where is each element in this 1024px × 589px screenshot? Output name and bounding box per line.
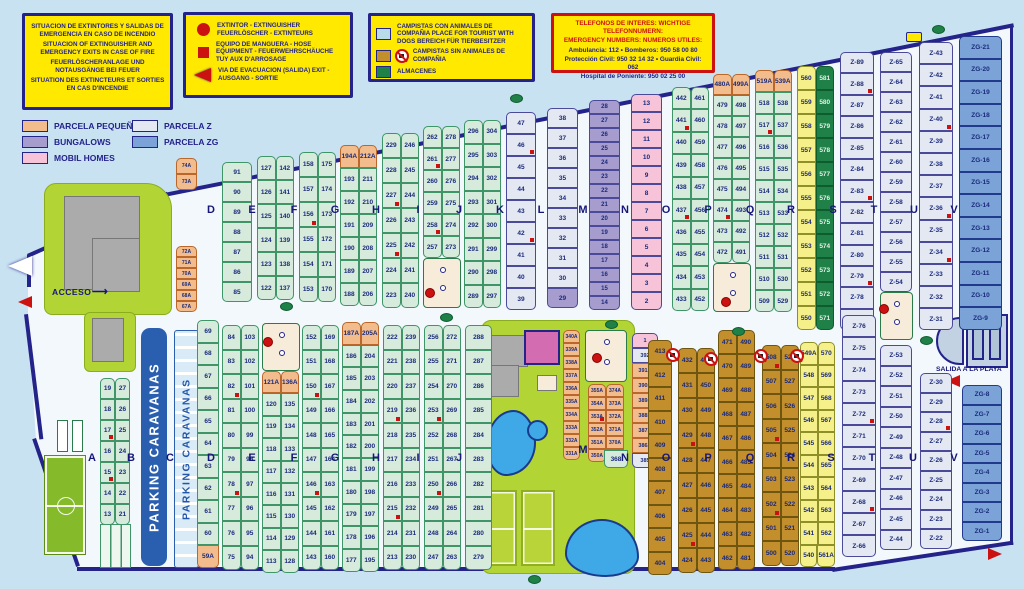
parcel-197: 197 bbox=[361, 504, 380, 527]
parcel-37: 37 bbox=[547, 128, 578, 148]
parcel-473: 473 bbox=[713, 221, 732, 242]
parcel-column-gh-lower: 187A205A18620418520318420218320118220018… bbox=[342, 322, 379, 572]
parcel-Z-23: Z-23 bbox=[920, 510, 952, 530]
phones-title-2: EMERGENCY NUMBERS: NUMEROS UTILES: bbox=[559, 37, 707, 45]
parcel-214: 214 bbox=[383, 521, 402, 546]
area-label-F: F bbox=[291, 204, 298, 216]
area-label-T: T bbox=[869, 452, 876, 464]
parcel-185: 185 bbox=[342, 367, 361, 390]
area-label-A: A bbox=[88, 452, 96, 464]
parcel-353A: 353A bbox=[588, 410, 606, 423]
parcel-31: 31 bbox=[547, 248, 578, 268]
marker-icon bbox=[437, 491, 441, 495]
parcel-ZG-1: ZG-1 bbox=[962, 522, 1002, 542]
parcel-231: 231 bbox=[402, 521, 421, 546]
parcel-206: 206 bbox=[359, 283, 378, 306]
parcel-67: 67 bbox=[197, 365, 219, 388]
bottom-exit-arrow bbox=[988, 548, 1002, 560]
parcel-column-k-upper: 474645444342414039 bbox=[506, 112, 536, 310]
parcel-85: 85 bbox=[222, 282, 252, 302]
info-point-icon bbox=[906, 32, 922, 42]
parcel-158: 158 bbox=[299, 152, 318, 177]
parcel-legend-swatch bbox=[132, 120, 158, 132]
parcel-552: 552 bbox=[797, 258, 816, 282]
legend-hose-text: EQUIPO DE MANGUERA - HOSE EQUIPMENT - FE… bbox=[216, 41, 334, 64]
parcel-215: 215 bbox=[383, 497, 402, 522]
parcel-ZG-8: ZG-8 bbox=[962, 385, 1002, 405]
extinguisher-icon bbox=[721, 297, 731, 307]
parcel-83: 83 bbox=[222, 350, 241, 375]
area-label-V: V bbox=[950, 452, 957, 464]
pink-building bbox=[524, 330, 560, 365]
parcel-287: 287 bbox=[465, 350, 492, 375]
parcel-517: 517 bbox=[755, 114, 774, 136]
parcel-148: 148 bbox=[302, 423, 321, 448]
parcel-130: 130 bbox=[281, 505, 300, 527]
parcel-126: 126 bbox=[257, 180, 276, 204]
parcel-10: 10 bbox=[631, 148, 662, 166]
parcel-column-tu-upper: Z-65Z-64Z-63Z-62Z-61Z-60Z-59Z-58Z-57Z-56… bbox=[880, 52, 912, 292]
parcel-187A: 187A bbox=[342, 322, 361, 345]
parcel-Z-86: Z-86 bbox=[840, 116, 874, 137]
parcel-404: 404 bbox=[648, 552, 672, 576]
parcel-513: 513 bbox=[755, 202, 774, 224]
parcel-426: 426 bbox=[678, 498, 697, 523]
parcel-legend-swatch bbox=[22, 120, 48, 132]
parcel-Z-42: Z-42 bbox=[919, 64, 953, 86]
parcel-497: 497 bbox=[732, 116, 751, 137]
parcel-28: 28 bbox=[589, 100, 620, 114]
parcel-Z-27: Z-27 bbox=[920, 432, 952, 452]
legend-exit-text: VIA DE EVACUACION (SALIDA) EXIT - AUSGAN… bbox=[218, 67, 336, 83]
parcel-Z-25: Z-25 bbox=[920, 471, 952, 491]
parcel-Z-41: Z-41 bbox=[919, 86, 953, 108]
parcel-276: 276 bbox=[442, 170, 461, 192]
parcel-544: 544 bbox=[800, 455, 818, 478]
parcel-15: 15 bbox=[100, 462, 115, 483]
parcel-14: 14 bbox=[589, 296, 620, 310]
marker-icon bbox=[530, 150, 534, 154]
parcel-432: 432 bbox=[678, 348, 697, 373]
parcel-296: 296 bbox=[464, 120, 483, 144]
parcel-25: 25 bbox=[115, 420, 130, 441]
area-label-U: U bbox=[909, 452, 917, 464]
parcel-column-fg-lower: 1521691511681501671491661481651471641461… bbox=[302, 325, 339, 570]
parcel-443: 443 bbox=[697, 548, 716, 573]
parcel-543: 543 bbox=[800, 477, 818, 500]
parcel-238: 238 bbox=[402, 350, 421, 375]
parcel-column-st-upper: Z-89Z-88Z-87Z-86Z-85Z-84Z-83Z-82Z-81Z-80… bbox=[840, 52, 874, 330]
parcel-ZG-3: ZG-3 bbox=[962, 483, 1002, 503]
parcel-column-f-upper: 158175157174156173155172154171153170 bbox=[299, 152, 336, 302]
parcel-ZG-17: ZG-17 bbox=[959, 126, 1002, 149]
parcel-118: 118 bbox=[262, 438, 281, 460]
parcel-124: 124 bbox=[257, 228, 276, 252]
parcel-556: 556 bbox=[797, 162, 816, 186]
parcel-149: 149 bbox=[302, 399, 321, 424]
parcel-Z-59: Z-59 bbox=[880, 172, 912, 192]
marker-icon bbox=[109, 477, 113, 481]
parcel-Z-61: Z-61 bbox=[880, 132, 912, 152]
parcel-27: 27 bbox=[115, 378, 130, 399]
parcel-563: 563 bbox=[818, 500, 836, 523]
parcel-460: 460 bbox=[691, 109, 710, 131]
parcel-44: 44 bbox=[506, 178, 536, 200]
parcel-Z-48: Z-48 bbox=[880, 448, 912, 469]
tree-icon bbox=[732, 327, 745, 336]
parcel-129: 129 bbox=[281, 528, 300, 550]
parcel-79: 79 bbox=[222, 448, 241, 473]
parcel-13: 13 bbox=[631, 94, 662, 112]
parcel-220: 220 bbox=[383, 374, 402, 399]
parcel-40: 40 bbox=[506, 266, 536, 288]
parcel-147: 147 bbox=[302, 448, 321, 473]
parcel-175: 175 bbox=[318, 152, 337, 177]
parcel-196: 196 bbox=[361, 526, 380, 549]
parcel-68: 68 bbox=[197, 343, 219, 366]
parcel-Z-65: Z-65 bbox=[880, 52, 912, 72]
parcel-99: 99 bbox=[241, 423, 260, 448]
parcel-560: 560 bbox=[797, 66, 816, 90]
parcel-289: 289 bbox=[464, 285, 483, 309]
parcel-143: 143 bbox=[302, 546, 321, 571]
parcel-119: 119 bbox=[262, 416, 281, 438]
parcel-Z-66: Z-66 bbox=[842, 535, 876, 557]
legend-almacenes-text: ALMACENES bbox=[397, 68, 436, 76]
parcel-legend-swatch bbox=[22, 152, 48, 164]
parcel-466: 466 bbox=[718, 450, 737, 474]
parcel-457: 457 bbox=[691, 177, 710, 199]
legend-extintor-text: EXTINTOR - EXTINGUISHER FEUERLÖSCHER - E… bbox=[217, 22, 335, 38]
dogs-zone-swatch bbox=[376, 28, 391, 40]
parcel-15: 15 bbox=[589, 282, 620, 296]
parcel-213: 213 bbox=[383, 546, 402, 571]
parcel-94: 94 bbox=[241, 546, 260, 571]
parcel-77: 77 bbox=[222, 497, 241, 522]
parcel-135: 135 bbox=[281, 393, 300, 415]
parcel-78: 78 bbox=[222, 472, 241, 497]
parcel-536: 536 bbox=[774, 136, 793, 158]
parcel-224: 224 bbox=[382, 258, 401, 283]
parcel-190: 190 bbox=[340, 237, 359, 260]
sanitary-building-1 bbox=[488, 335, 528, 367]
parcel-17: 17 bbox=[100, 420, 115, 441]
area-label-O: O bbox=[662, 452, 671, 464]
parcel-182: 182 bbox=[342, 435, 361, 458]
tree-icon bbox=[932, 25, 945, 34]
parcel-577: 577 bbox=[816, 162, 835, 186]
parcel-264: 264 bbox=[443, 521, 462, 546]
area-label-J: J bbox=[456, 204, 462, 216]
parcel-372A: 372A bbox=[606, 410, 624, 423]
area-label-M: M bbox=[578, 204, 587, 216]
area-label-H: H bbox=[372, 204, 380, 216]
parcel-454: 454 bbox=[691, 244, 710, 266]
parcel-438: 438 bbox=[672, 177, 691, 199]
parcel-286: 286 bbox=[465, 374, 492, 399]
area-label-O: O bbox=[662, 204, 671, 216]
legend-zones-box: CAMPISTAS CON ANIMALES DE COMPAÑIA PLACE… bbox=[368, 13, 535, 82]
parcel-464: 464 bbox=[718, 498, 737, 522]
parcel-167: 167 bbox=[321, 374, 340, 399]
parcel-Z-37: Z-37 bbox=[919, 175, 953, 197]
parcel-221: 221 bbox=[383, 350, 402, 375]
parcel-column-de-lower: 8410383102821018110080997998789777967695… bbox=[222, 325, 259, 570]
parcel-477: 477 bbox=[713, 137, 732, 158]
parcel-ZG-18: ZG-18 bbox=[959, 104, 1002, 127]
parcel-266: 266 bbox=[443, 472, 462, 497]
parcel-column-e-upper: 127142126141125140124139123138122137 bbox=[257, 156, 294, 300]
parcel-292: 292 bbox=[464, 214, 483, 238]
parcel-ZG-10: ZG-10 bbox=[959, 285, 1002, 308]
parcel-131: 131 bbox=[281, 483, 300, 505]
parcel-65: 65 bbox=[197, 410, 219, 433]
parcel-34: 34 bbox=[547, 188, 578, 208]
parcel-Z-26: Z-26 bbox=[920, 451, 952, 471]
parcel-405: 405 bbox=[648, 528, 672, 552]
no-dogs-icon bbox=[790, 349, 804, 363]
legend-fire-fr: SITUATION DES EXTINCTEURS ET SORTIES EN … bbox=[30, 77, 165, 92]
parcel-468: 468 bbox=[718, 402, 737, 426]
marker-icon bbox=[395, 252, 399, 256]
parcel-241: 241 bbox=[401, 258, 420, 283]
parcel-161: 161 bbox=[321, 521, 340, 546]
area-label-M: M bbox=[578, 444, 587, 456]
parcel-33: 33 bbox=[547, 208, 578, 228]
parcel-column-r-upper: 5605815595805585795575785565775555765545… bbox=[797, 66, 834, 330]
parcel-502: 502 bbox=[762, 492, 781, 517]
parcel-527: 527 bbox=[781, 370, 800, 395]
parcel-6: 6 bbox=[631, 220, 662, 238]
legend-symbols-box: EXTINTOR - EXTINGUISHER FEUERLÖSCHER - E… bbox=[183, 12, 353, 98]
tree-icon bbox=[280, 302, 293, 311]
parcel-legend-label: MOBIL HOMES bbox=[54, 153, 115, 163]
parcel-column-ij-lower: 2562722552712542702532692522682512672502… bbox=[424, 325, 461, 570]
parcel-514: 514 bbox=[755, 180, 774, 202]
area-label-E: E bbox=[248, 204, 255, 216]
parcel-189: 189 bbox=[340, 260, 359, 283]
parcel-column-ef-lower: 121A136A12013511913411813311713211613111… bbox=[262, 371, 299, 573]
parcel-562: 562 bbox=[818, 522, 836, 545]
parcel-125: 125 bbox=[257, 204, 276, 228]
parcel-100: 100 bbox=[241, 399, 260, 424]
area-label-D: D bbox=[207, 452, 215, 464]
parcel-35: 35 bbox=[547, 168, 578, 188]
parcel-509: 509 bbox=[755, 290, 774, 312]
parcel-541: 541 bbox=[800, 522, 818, 545]
parcel-103: 103 bbox=[241, 325, 260, 350]
acceso-direction-arrow: ⟶ bbox=[92, 285, 108, 298]
parcel-ZG-21: ZG-21 bbox=[959, 36, 1002, 59]
parcel-370A: 370A bbox=[606, 436, 624, 449]
legend-fire-en: SITUACION OF EXTINGUISHER AND EMERGENCY … bbox=[30, 41, 165, 56]
parcel-Z-49: Z-49 bbox=[880, 427, 912, 448]
acceso-label: ACCESO bbox=[52, 287, 91, 297]
parcel-11: 11 bbox=[631, 130, 662, 148]
parcel-557: 557 bbox=[797, 138, 816, 162]
area-label-G: G bbox=[331, 204, 340, 216]
parcel-97: 97 bbox=[241, 472, 260, 497]
marker-icon bbox=[870, 419, 874, 423]
parcel-503: 503 bbox=[762, 468, 781, 493]
parcel-495: 495 bbox=[732, 158, 751, 179]
parcel-17: 17 bbox=[589, 254, 620, 268]
marker-icon bbox=[530, 238, 534, 242]
parcel-561A: 561A bbox=[817, 545, 835, 568]
parcel-530: 530 bbox=[774, 268, 793, 290]
parcel-335A: 335A bbox=[563, 395, 580, 408]
parcel-81: 81 bbox=[222, 399, 241, 424]
parcel-484: 484 bbox=[737, 474, 756, 498]
parcel-legend-row: PARCELA PEQUEÑA bbox=[22, 118, 139, 134]
parcel-ZG-7: ZG-7 bbox=[962, 405, 1002, 425]
parcel-516: 516 bbox=[755, 136, 774, 158]
parcel-legend-label: PARCELA Z bbox=[164, 121, 212, 131]
parcel-462: 462 bbox=[718, 546, 737, 570]
parcel-494: 494 bbox=[732, 179, 751, 200]
parcel-ZG-6: ZG-6 bbox=[962, 424, 1002, 444]
parcel-260: 260 bbox=[423, 170, 442, 192]
parcel-446: 446 bbox=[697, 473, 716, 498]
parcel-481: 481 bbox=[737, 546, 756, 570]
parcel-284: 284 bbox=[465, 423, 492, 448]
parcel-Z-32: Z-32 bbox=[919, 286, 953, 308]
area-label-J: J bbox=[456, 452, 462, 464]
parcel-425: 425 bbox=[678, 523, 697, 548]
parcel-62: 62 bbox=[197, 478, 219, 501]
parcel-120: 120 bbox=[262, 393, 281, 415]
legend-fire-de: FEUERLÖSCHERANLAGE UND NOTAUSGÄNGE BEI F… bbox=[30, 59, 165, 74]
sanitary-block-i bbox=[423, 258, 461, 308]
tree-icon bbox=[510, 94, 523, 103]
parcel-226: 226 bbox=[382, 208, 401, 233]
parcel-legend-label: PARCELA PEQUEÑA bbox=[54, 121, 139, 131]
parcel-174: 174 bbox=[318, 177, 337, 202]
parcel-ZG-14: ZG-14 bbox=[959, 194, 1002, 217]
reception-building-wing bbox=[92, 238, 140, 292]
marker-icon bbox=[775, 364, 779, 368]
area-label-L: L bbox=[538, 204, 545, 216]
parcel-491: 491 bbox=[732, 242, 751, 263]
parcel-column-h-upper: 2292462282452272442262432252422242412232… bbox=[382, 133, 419, 308]
parcel-column-uv-lower: Z-30Z-29Z-28Z-27Z-26Z-25Z-24Z-23Z-22 bbox=[920, 373, 952, 549]
parcel-439: 439 bbox=[672, 154, 691, 176]
parcel-Z-35: Z-35 bbox=[919, 220, 953, 242]
parcel-128: 128 bbox=[281, 550, 300, 572]
marker-icon bbox=[235, 393, 239, 397]
parcel-column-a-bottom: 72A71A70A69A68A67A bbox=[176, 246, 197, 312]
parcel-195: 195 bbox=[361, 549, 380, 572]
parcel-legend-row: MOBIL HOMES bbox=[22, 150, 139, 166]
parcel-444: 444 bbox=[697, 523, 716, 548]
parcel-555: 555 bbox=[797, 186, 816, 210]
parcel-247: 247 bbox=[424, 546, 443, 571]
parcel-18: 18 bbox=[100, 399, 115, 420]
area-label-E: E bbox=[248, 452, 255, 464]
marker-icon bbox=[691, 442, 695, 446]
parcel-249: 249 bbox=[424, 497, 443, 522]
parcel-18: 18 bbox=[589, 240, 620, 254]
parcel-352A: 352A bbox=[588, 423, 606, 436]
parcel-472: 472 bbox=[713, 242, 732, 263]
campsite-map: SITUACION DE EXTINTORES Y SALIDAS DE EME… bbox=[0, 0, 1024, 589]
parcel-Z-43: Z-43 bbox=[919, 42, 953, 64]
parcel-291: 291 bbox=[464, 238, 483, 262]
parcel-Z-83: Z-83 bbox=[840, 180, 874, 201]
parcel-525: 525 bbox=[781, 419, 800, 444]
parcel-154: 154 bbox=[299, 252, 318, 277]
parcel-489: 489 bbox=[737, 354, 756, 378]
parcel-123: 123 bbox=[257, 252, 276, 276]
parcel-177: 177 bbox=[342, 549, 361, 572]
parcel-Z-38: Z-38 bbox=[919, 153, 953, 175]
parcel-458: 458 bbox=[691, 154, 710, 176]
parcel-column-cd-lower: 6968676665646362616059A bbox=[197, 320, 219, 568]
parcel-43: 43 bbox=[506, 200, 536, 222]
marker-icon bbox=[868, 281, 872, 285]
parcel-91: 91 bbox=[222, 162, 252, 182]
parcel-504: 504 bbox=[762, 443, 781, 468]
parcel-183: 183 bbox=[342, 413, 361, 436]
parcel-570: 570 bbox=[818, 342, 835, 365]
tree-icon bbox=[440, 313, 453, 322]
area-label-Q: Q bbox=[746, 452, 755, 464]
area-label-P: P bbox=[704, 204, 711, 216]
parcel-298: 298 bbox=[483, 261, 502, 285]
parcel-Z-84: Z-84 bbox=[840, 159, 874, 180]
parcel-268: 268 bbox=[443, 423, 462, 448]
parcel-537: 537 bbox=[774, 114, 793, 136]
parcel-16: 16 bbox=[100, 441, 115, 462]
parcel-145: 145 bbox=[302, 497, 321, 522]
parcel-142: 142 bbox=[276, 156, 295, 180]
parcel-202: 202 bbox=[361, 390, 380, 413]
parcel-column-l-upper: 38373635343332313029 bbox=[547, 108, 578, 308]
parcel-534: 534 bbox=[774, 180, 793, 202]
parcel-208: 208 bbox=[359, 237, 378, 260]
parcel-61: 61 bbox=[197, 500, 219, 523]
acceso-arrow-icon bbox=[18, 296, 32, 308]
parcel-442: 442 bbox=[672, 87, 691, 109]
area-label-U: U bbox=[910, 204, 918, 216]
parcel-191: 191 bbox=[340, 214, 359, 237]
parcel-160: 160 bbox=[321, 546, 340, 571]
parcel-Z-29: Z-29 bbox=[920, 393, 952, 413]
parcel-256: 256 bbox=[424, 325, 443, 350]
parcel-ZG-5: ZG-5 bbox=[962, 444, 1002, 464]
parcel-229: 229 bbox=[382, 133, 401, 158]
parcel-Z-76: Z-76 bbox=[842, 315, 876, 337]
parcel-74A: 74A bbox=[176, 158, 197, 174]
parcel-551: 551 bbox=[797, 282, 816, 306]
parcel-127: 127 bbox=[257, 156, 276, 180]
parcel-Z-71: Z-71 bbox=[842, 425, 876, 447]
parcel-254: 254 bbox=[424, 374, 443, 399]
parcel-253: 253 bbox=[424, 399, 443, 424]
parcel-542: 542 bbox=[800, 500, 818, 523]
service-building bbox=[92, 318, 124, 362]
parcel-371A: 371A bbox=[606, 423, 624, 436]
salida-playa-label: SALIDA A LA PLAYA bbox=[936, 366, 1002, 373]
parcel-141: 141 bbox=[276, 180, 295, 204]
parcel-86: 86 bbox=[222, 262, 252, 282]
area-label-N: N bbox=[621, 452, 629, 464]
parcel-12: 12 bbox=[631, 112, 662, 130]
area-label-B: B bbox=[127, 452, 135, 464]
tree-icon bbox=[528, 575, 541, 584]
boundary-right bbox=[1010, 27, 1013, 545]
parcel-410: 410 bbox=[648, 411, 672, 435]
